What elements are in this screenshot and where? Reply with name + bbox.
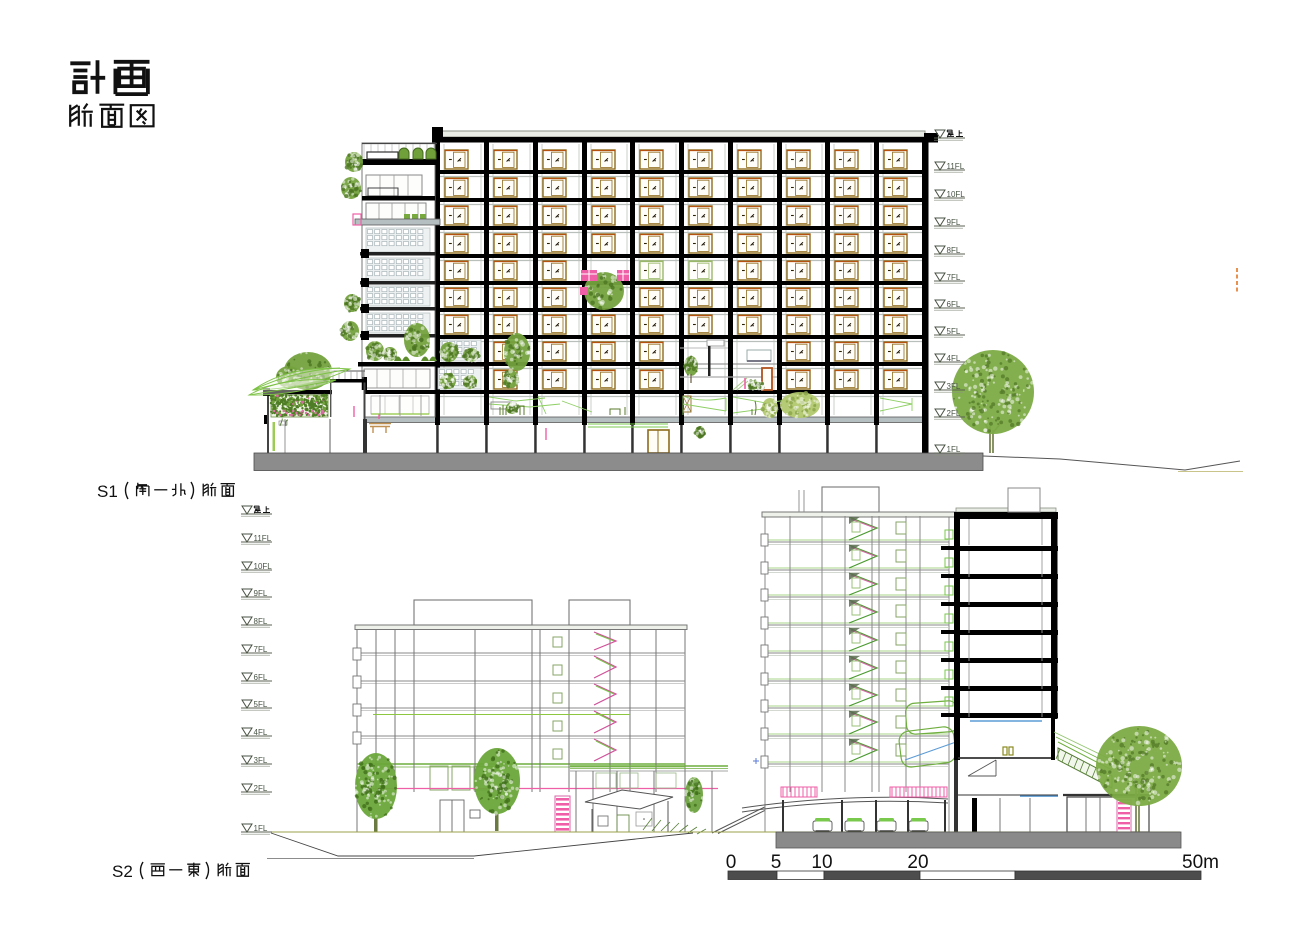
svg-text:5FL: 5FL [254, 700, 268, 709]
svg-text:6FL: 6FL [254, 673, 268, 682]
svg-text:S1: S1 [97, 482, 118, 501]
svg-text:8FL: 8FL [254, 617, 268, 626]
svg-text:4FL: 4FL [947, 354, 961, 363]
svg-text:3FL: 3FL [254, 756, 268, 765]
svg-text:10FL: 10FL [254, 562, 273, 571]
svg-text:7FL: 7FL [947, 273, 961, 282]
svg-text:4FL: 4FL [254, 728, 268, 737]
svg-text:1FL: 1FL [254, 824, 268, 833]
svg-text:50m: 50m [1182, 852, 1219, 873]
svg-text:5: 5 [771, 852, 782, 873]
svg-text:5FL: 5FL [947, 327, 961, 336]
svg-text:11FL: 11FL [254, 534, 272, 543]
svg-text:7FL: 7FL [254, 645, 268, 654]
svg-text:S2: S2 [112, 862, 133, 881]
svg-text:8FL: 8FL [947, 246, 961, 255]
svg-text:1FL: 1FL [947, 445, 961, 454]
svg-text:2FL: 2FL [254, 784, 268, 793]
svg-text:0: 0 [726, 852, 737, 873]
svg-text:6FL: 6FL [947, 300, 961, 309]
svg-text:2FL: 2FL [947, 409, 961, 418]
svg-text:3FL: 3FL [947, 382, 961, 391]
svg-text:10FL: 10FL [947, 190, 966, 199]
svg-text:20: 20 [907, 852, 928, 873]
svg-text:10: 10 [811, 852, 832, 873]
svg-text:9FL: 9FL [254, 589, 268, 598]
svg-text:11FL: 11FL [947, 162, 965, 171]
svg-text:9FL: 9FL [947, 218, 961, 227]
